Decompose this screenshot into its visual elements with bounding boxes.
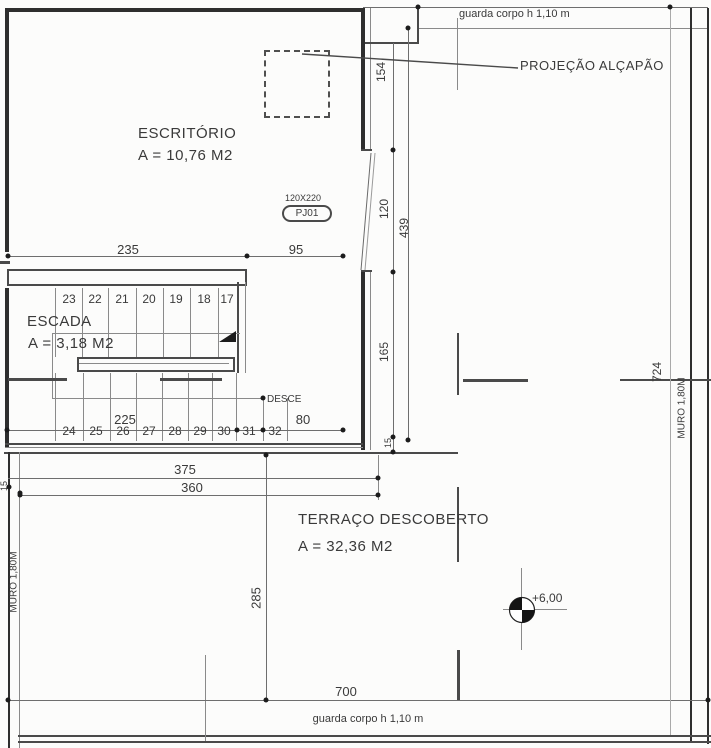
room-area-escritorio: A = 10,76 M2	[138, 148, 233, 164]
dim-15-left: 15	[0, 481, 9, 491]
floor-plan: 120X220 PJ01 +6,00 ESCRITÓRIO A = 10,76 …	[0, 0, 711, 748]
dim-285: 285	[249, 587, 264, 609]
room-area-escada: A = 3,18 M2	[28, 336, 114, 352]
stair-number: 20	[142, 293, 155, 306]
room-label-escritorio: ESCRITÓRIO	[138, 126, 236, 142]
stair-number: 25	[89, 425, 102, 438]
dim-15-right: 15	[383, 438, 393, 448]
stair-number: 23	[62, 293, 75, 306]
stair-number: 27	[142, 425, 155, 438]
dim-375: 375	[174, 463, 196, 477]
room-area-terraco: A = 32,36 M2	[298, 539, 393, 555]
dim-154: 154	[374, 62, 388, 82]
alcapao-leader-line	[302, 54, 518, 68]
room-label-escada: ESCADA	[27, 314, 92, 330]
stair-number: 28	[168, 425, 181, 438]
level-value: +6,00	[532, 592, 562, 605]
stair-number: 30	[217, 425, 230, 438]
muro-label-left: MURO 1,80M	[9, 551, 20, 612]
stair-number: 19	[169, 293, 182, 306]
guard-rail-label-bottom: guarda corpo h 1,10 m	[313, 714, 424, 726]
stair-number: 29	[193, 425, 206, 438]
alcapao-projection-label: PROJEÇÃO ALÇAPÃO	[520, 59, 664, 73]
stair-number: 21	[115, 293, 128, 306]
stair-number: 31	[242, 425, 255, 438]
guard-rail-label-top: guarda corpo h 1,10 m	[459, 9, 570, 21]
stair-number: 17	[220, 293, 233, 306]
dim-360: 360	[181, 481, 203, 495]
stair-number: 26	[116, 425, 129, 438]
descend-label: DESCE	[267, 395, 301, 406]
stair-number: 32	[268, 425, 281, 438]
diagonal-lines-layer	[0, 0, 711, 748]
dim-724: 724	[650, 362, 664, 382]
dim-439: 439	[397, 218, 411, 238]
dim-80: 80	[296, 413, 310, 427]
dim-700: 700	[335, 685, 357, 699]
stair-number: 22	[88, 293, 101, 306]
stair-number: 24	[62, 425, 75, 438]
dim-95: 95	[289, 243, 303, 257]
dim-120: 120	[377, 199, 391, 219]
muro-label-right: MURO 1,80M	[677, 377, 688, 438]
dim-165: 165	[377, 342, 391, 362]
room-label-terraco: TERRAÇO DESCOBERTO	[298, 512, 489, 528]
stair-number: 18	[197, 293, 210, 306]
dim-235: 235	[117, 243, 139, 257]
